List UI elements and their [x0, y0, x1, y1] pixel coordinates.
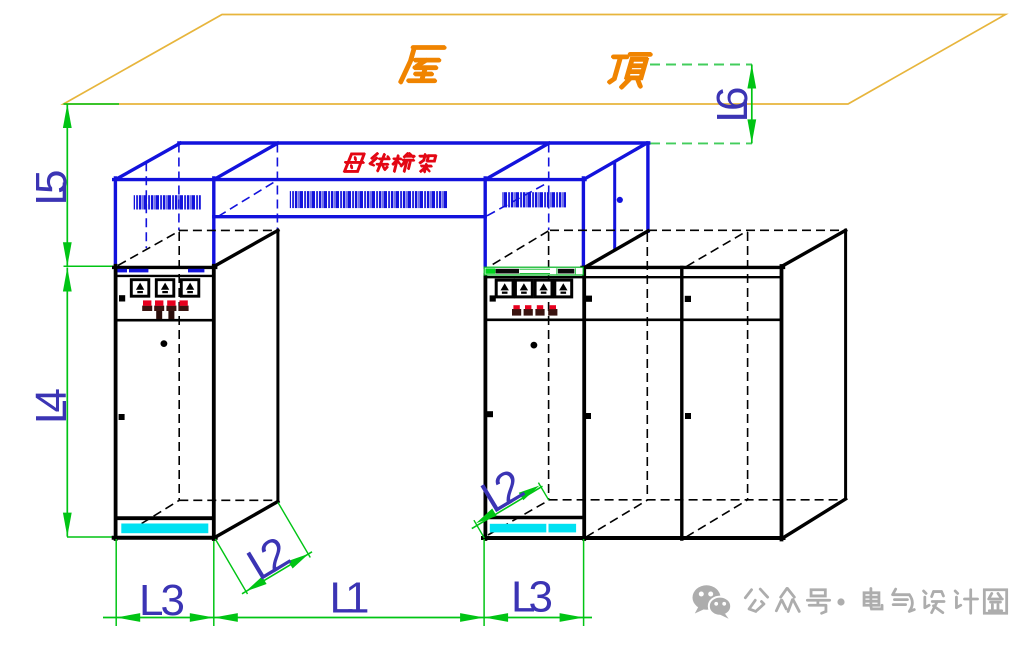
svg-text:L5: L5	[27, 170, 76, 206]
svg-text:L4: L4	[27, 388, 76, 424]
svg-text:L6: L6	[708, 87, 757, 123]
svg-text:L3: L3	[139, 576, 185, 625]
svg-text:L1: L1	[330, 574, 370, 623]
svg-text:L3: L3	[511, 573, 553, 622]
